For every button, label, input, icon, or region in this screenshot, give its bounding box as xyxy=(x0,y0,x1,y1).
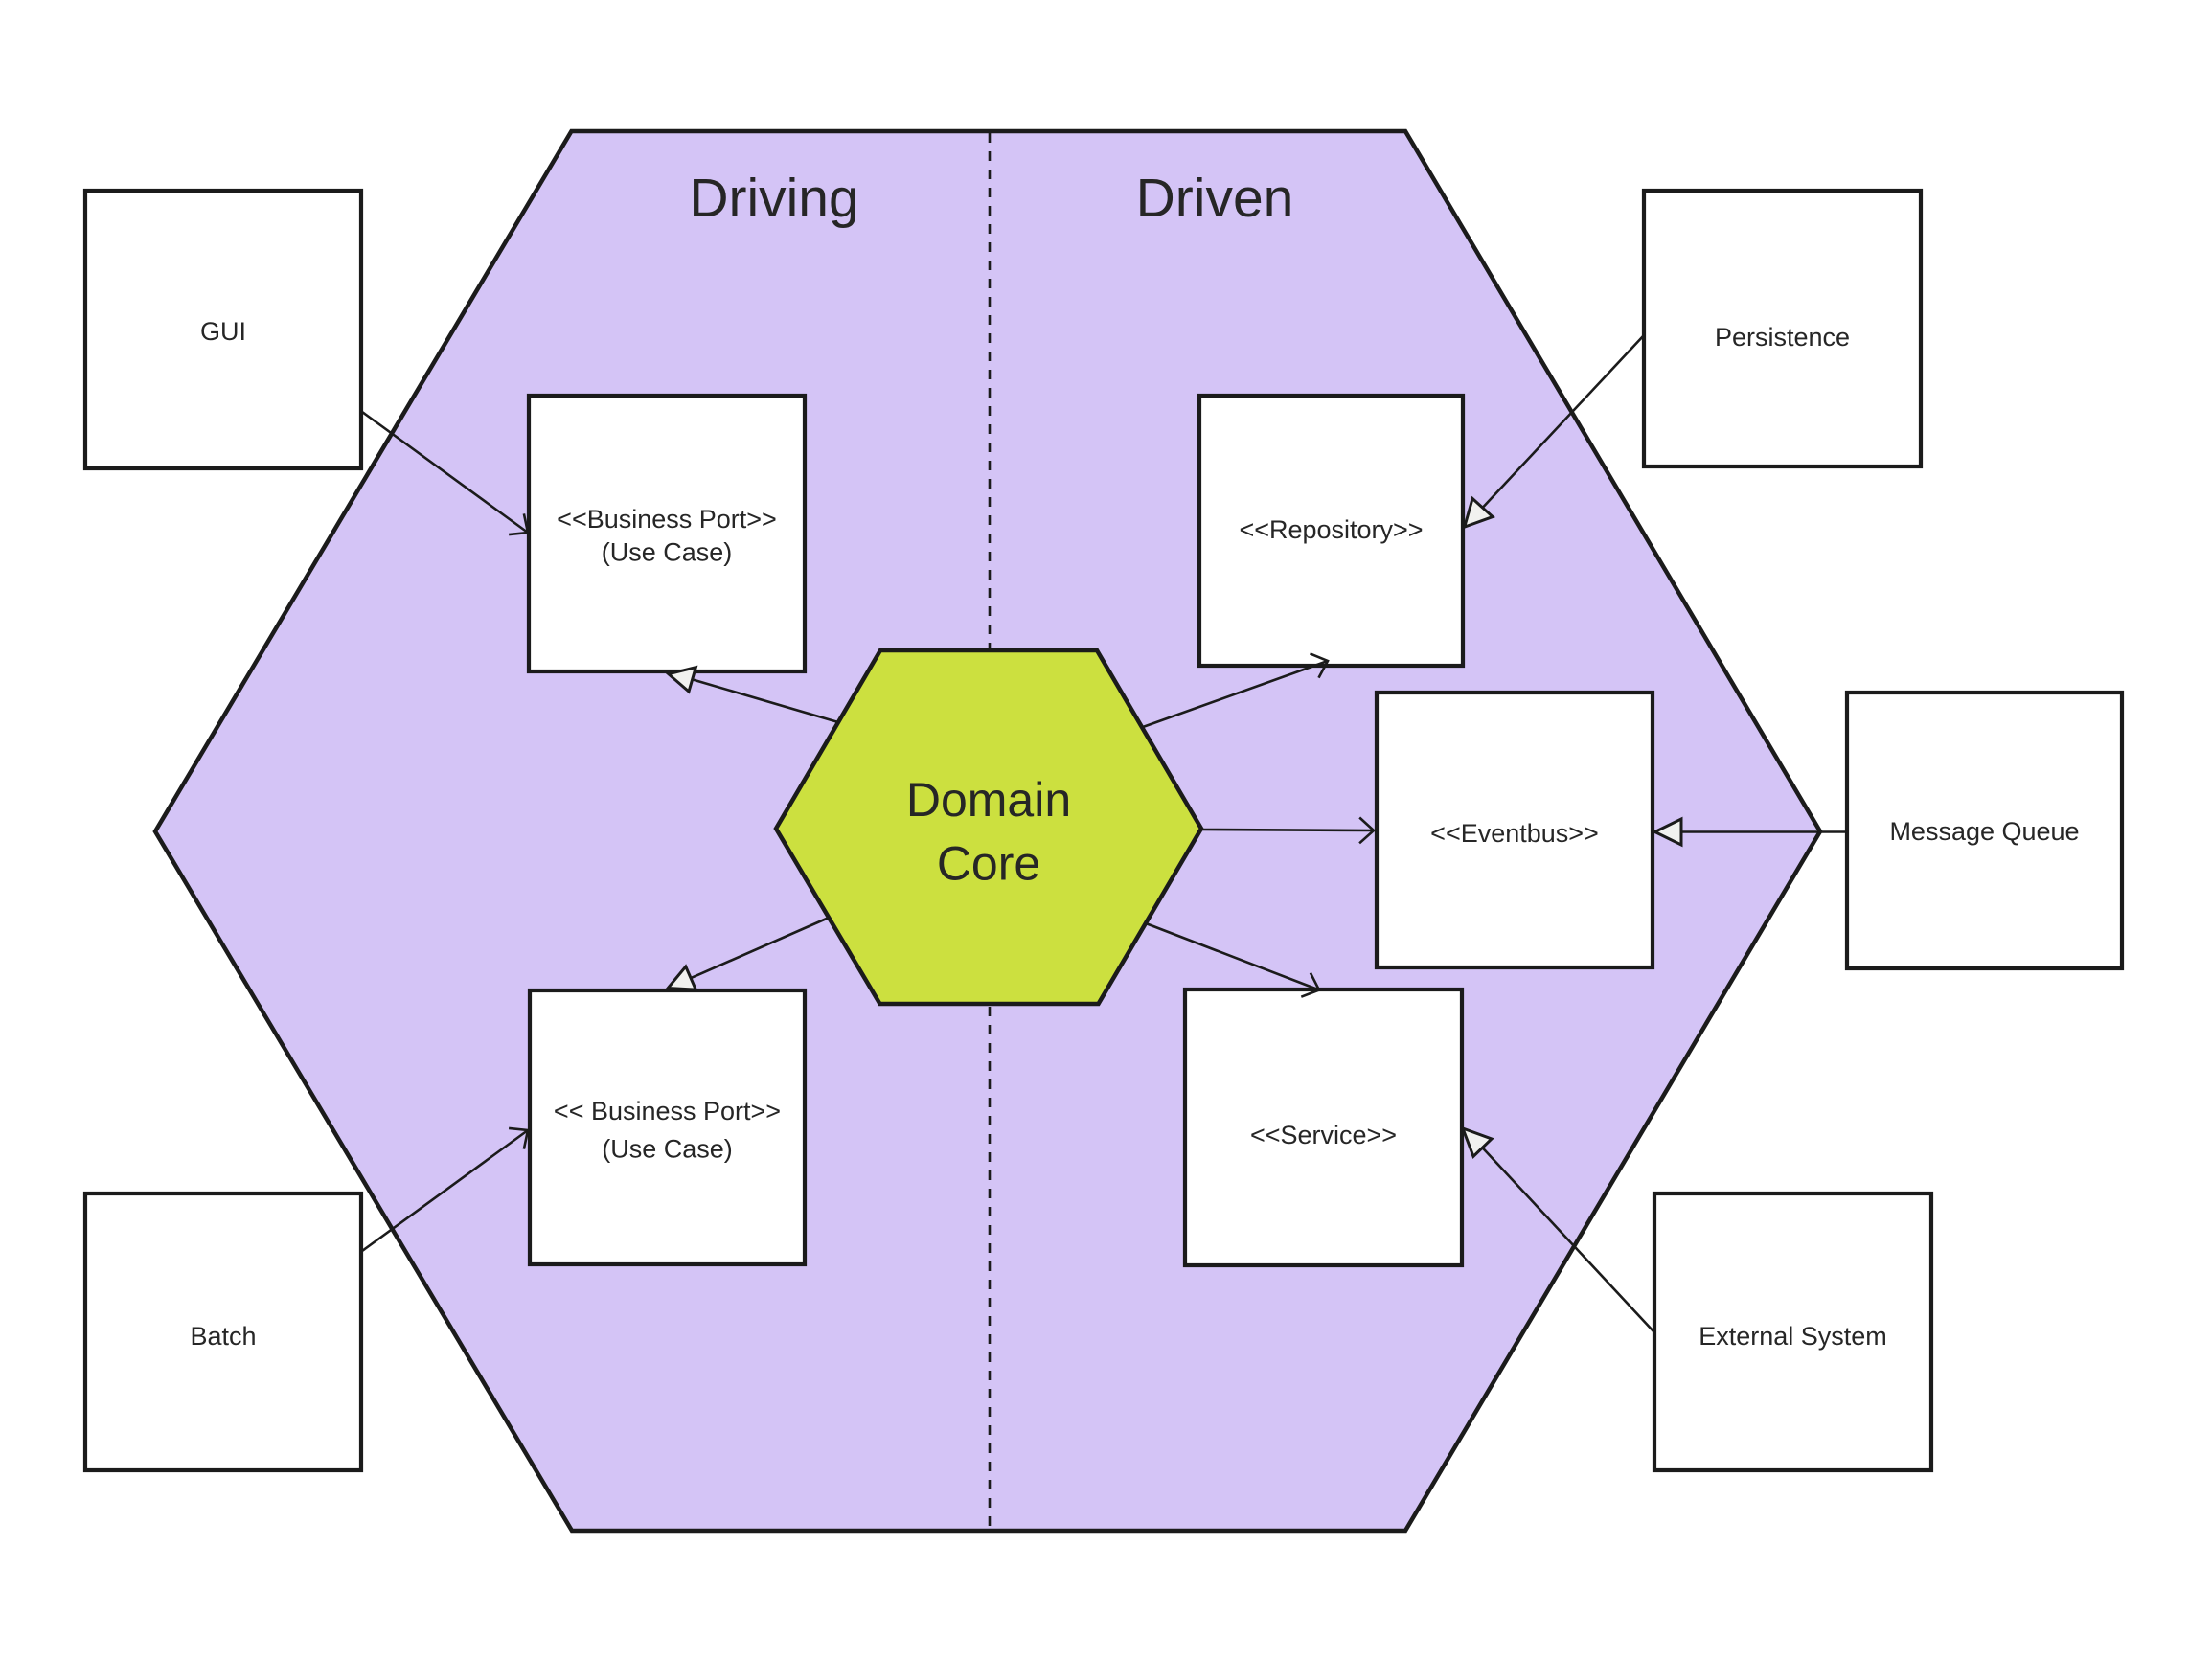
svg-text:<<Service>>: <<Service>> xyxy=(1250,1121,1397,1149)
svg-text:Core: Core xyxy=(937,837,1040,891)
svg-text:Persistence: Persistence xyxy=(1715,323,1850,352)
svg-text:GUI: GUI xyxy=(200,317,246,346)
svg-text:(Use Case): (Use Case) xyxy=(602,1135,733,1164)
svg-text:<<Business Port>>: <<Business Port>> xyxy=(557,505,777,534)
svg-text:Driving: Driving xyxy=(689,168,858,229)
svg-text:<<Eventbus>>: <<Eventbus>> xyxy=(1430,819,1599,848)
svg-text:(Use Case): (Use Case) xyxy=(602,538,733,567)
svg-text:<< Business Port>>: << Business Port>> xyxy=(554,1097,781,1125)
svg-text:Domain: Domain xyxy=(906,773,1071,827)
svg-text:Batch: Batch xyxy=(190,1322,256,1351)
svg-text:Message Queue: Message Queue xyxy=(1889,817,2079,846)
svg-text:External System: External System xyxy=(1699,1322,1887,1351)
svg-text:Driven: Driven xyxy=(1136,168,1294,229)
svg-text:<<Repository>>: <<Repository>> xyxy=(1239,515,1423,544)
